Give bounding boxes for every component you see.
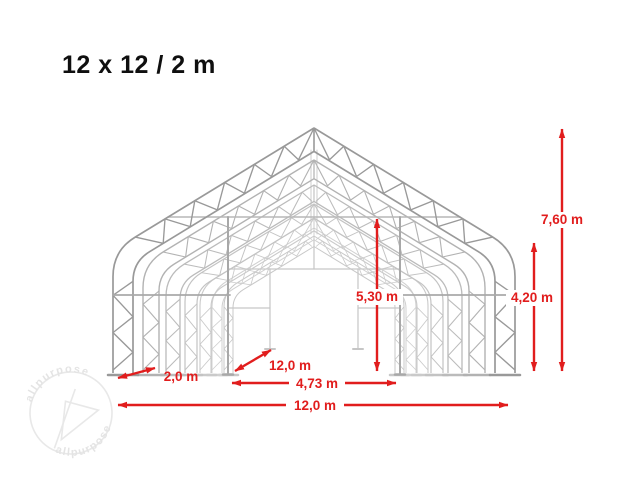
- dim-bay-spacing-label: 2,0 m: [164, 369, 199, 384]
- watermark-text-top: allpurpose: [16, 352, 95, 407]
- dim-line-bay-spacing: [118, 368, 155, 378]
- watermark-triangle: [47, 390, 103, 439]
- dim-inner-width-label: 4,73 m: [296, 376, 338, 391]
- diagram-canvas: 12 x 12 / 2 m allpurpose allpurpose: [0, 0, 639, 479]
- watermark-logo: allpurpose allpurpose: [13, 350, 128, 472]
- dim-total-width-label: 12,0 m: [294, 398, 336, 413]
- watermark-line: [35, 389, 94, 448]
- back-wall-framing: [228, 150, 400, 349]
- tent-structure-diagram: allpurpose allpurpose 7,60 m 4,20 m: [0, 0, 639, 479]
- dimension-lines: 7,60 m 4,20 m 5,30 m 2,0 m 12,0 m 4,73 m…: [118, 129, 588, 413]
- truss-structure: [108, 128, 520, 375]
- dim-line-length: [235, 350, 271, 371]
- dim-clear-height-label: 5,30 m: [356, 289, 398, 304]
- dim-eave-height-label: 4,20 m: [511, 290, 553, 305]
- dim-total-height-label: 7,60 m: [541, 212, 583, 227]
- dim-length-label: 12,0 m: [269, 358, 311, 373]
- watermark-text-bottom: allpurpose: [50, 419, 120, 469]
